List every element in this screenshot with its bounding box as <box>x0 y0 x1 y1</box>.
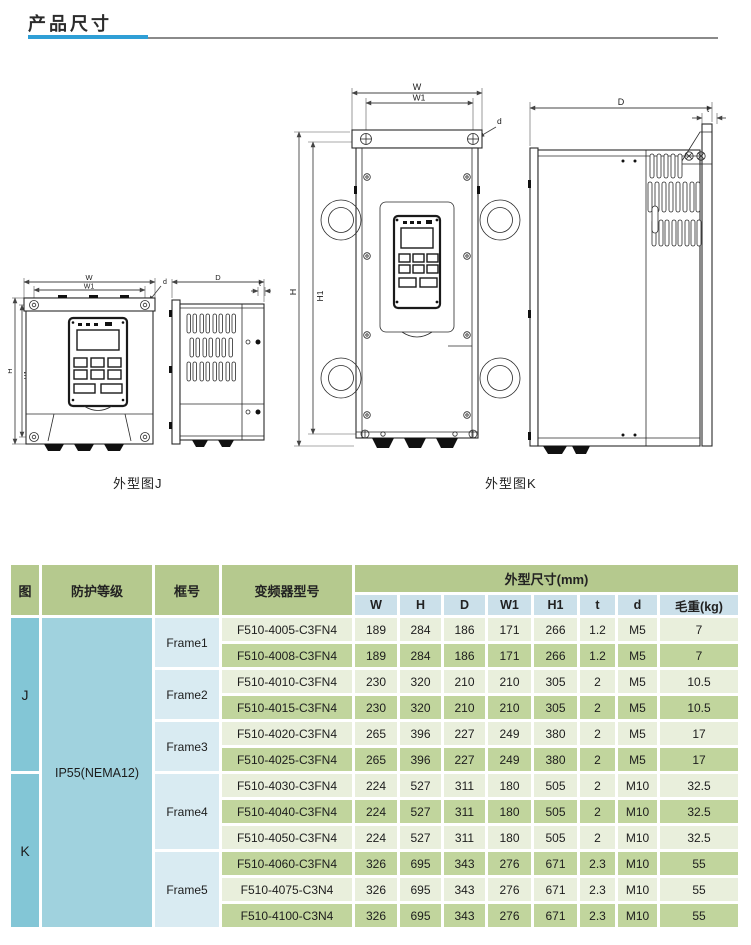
value-cell: 55 <box>660 852 738 875</box>
header-dim-w1: W1 <box>488 595 531 615</box>
value-cell: 326 <box>355 852 397 875</box>
model-cell: F510-4010-C3FN4 <box>222 670 352 693</box>
value-cell: 343 <box>444 878 485 901</box>
header-dim-h1: H1 <box>534 595 577 615</box>
value-cell: 671 <box>534 852 577 875</box>
value-cell: 265 <box>355 722 397 745</box>
value-cell: 266 <box>534 618 577 641</box>
value-cell: 2 <box>580 826 615 849</box>
value-cell: 2.3 <box>580 878 615 901</box>
model-cell: F510-4020-C3FN4 <box>222 722 352 745</box>
value-cell: 189 <box>355 618 397 641</box>
model-cell: F510-4025-C3FN4 <box>222 748 352 771</box>
figure-j-drawing: W W1 H H1 d <box>8 274 273 474</box>
value-cell: 276 <box>488 904 531 927</box>
dim-label-depth: D <box>618 97 625 107</box>
value-cell: M5 <box>618 644 657 667</box>
header-weight: 毛重(kg) <box>660 595 738 615</box>
value-cell: M5 <box>618 696 657 719</box>
value-cell: M10 <box>618 852 657 875</box>
value-cell: 17 <box>660 748 738 771</box>
value-cell: 265 <box>355 748 397 771</box>
value-cell: M10 <box>618 904 657 927</box>
dim-label-h1: H1 <box>315 290 325 301</box>
value-cell: 227 <box>444 748 485 771</box>
value-cell: 10.5 <box>660 670 738 693</box>
dim-label-h: H <box>8 368 14 373</box>
value-cell: 311 <box>444 826 485 849</box>
figure-j-front-view <box>24 295 155 451</box>
value-cell: 380 <box>534 722 577 745</box>
value-cell: 55 <box>660 878 738 901</box>
value-cell: 527 <box>400 774 441 797</box>
value-cell: M5 <box>618 748 657 771</box>
value-cell: M10 <box>618 878 657 901</box>
value-cell: 10.5 <box>660 696 738 719</box>
figure-j-keypad <box>69 318 127 406</box>
value-cell: 180 <box>488 826 531 849</box>
value-cell: 17 <box>660 722 738 745</box>
model-cell: F510-4030-C3FN4 <box>222 774 352 797</box>
value-cell: 505 <box>534 800 577 823</box>
dim-label-w: W <box>85 274 93 282</box>
model-cell: F510-4050-C3FN4 <box>222 826 352 849</box>
value-cell: 527 <box>400 826 441 849</box>
value-cell: 32.5 <box>660 774 738 797</box>
dim-label-depth: D <box>215 274 221 282</box>
dim-label-w1: W1 <box>413 93 426 103</box>
value-cell: 343 <box>444 904 485 927</box>
header-protection: 防护等级 <box>42 565 152 615</box>
value-cell: 284 <box>400 618 441 641</box>
fig-cell-j: J <box>11 618 39 771</box>
model-cell: F510-4008-C3FN4 <box>222 644 352 667</box>
figure-k-keypad <box>394 216 440 308</box>
value-cell: 249 <box>488 722 531 745</box>
value-cell: M5 <box>618 670 657 693</box>
dim-label-t: t <box>259 281 261 288</box>
header-dim-w: W <box>355 595 397 615</box>
value-cell: M10 <box>618 826 657 849</box>
figure-k-drawing: W W1 H H1 d <box>290 80 745 470</box>
figure-k-front-view <box>321 130 520 448</box>
page-title: 产品尺寸 <box>28 10 112 36</box>
protection-cell: IP55(NEMA12) <box>42 618 152 927</box>
model-cell: F510-4005-C3FN4 <box>222 618 352 641</box>
table-row: J IP55(NEMA12) Frame1 F510-4005-C3FN4 18… <box>11 618 738 641</box>
value-cell: 695 <box>400 852 441 875</box>
frame-cell: Frame2 <box>155 670 219 719</box>
dim-label-d: d <box>163 279 167 286</box>
value-cell: 2.3 <box>580 852 615 875</box>
frame-cell: Frame5 <box>155 852 219 927</box>
header-dim-h: H <box>400 595 441 615</box>
value-cell: 671 <box>534 878 577 901</box>
header-fig: 图 <box>11 565 39 615</box>
value-cell: 276 <box>488 878 531 901</box>
value-cell: 249 <box>488 748 531 771</box>
value-cell: 311 <box>444 774 485 797</box>
value-cell: 210 <box>444 670 485 693</box>
figure-j-side-view: D t <box>169 274 271 447</box>
header-model: 变频器型号 <box>222 565 352 615</box>
model-cell: F510-4100-C3N4 <box>222 904 352 927</box>
dim-label-w: W <box>413 82 422 92</box>
value-cell: 695 <box>400 878 441 901</box>
model-cell: F510-4060-C3FN4 <box>222 852 352 875</box>
value-cell: 284 <box>400 644 441 667</box>
value-cell: M5 <box>618 618 657 641</box>
product-dimensions-page: { "page": { "title": "产品尺寸" }, "colors":… <box>0 0 751 945</box>
spec-table: 图 防护等级 框号 变频器型号 外型尺寸(mm) W H D W1 H1 t d… <box>8 562 741 930</box>
value-cell: M10 <box>618 774 657 797</box>
title-underline-accent <box>28 35 148 39</box>
frame-cell: Frame1 <box>155 618 219 667</box>
value-cell: 227 <box>444 722 485 745</box>
value-cell: 189 <box>355 644 397 667</box>
header-dim-d: D <box>444 595 485 615</box>
value-cell: 7 <box>660 644 738 667</box>
value-cell: 32.5 <box>660 800 738 823</box>
value-cell: 224 <box>355 826 397 849</box>
header-frame: 框号 <box>155 565 219 615</box>
value-cell: 2 <box>580 696 615 719</box>
value-cell: 2 <box>580 800 615 823</box>
figure-k-side-view: D t <box>528 97 726 454</box>
dim-label-d: d <box>497 116 502 126</box>
value-cell: 224 <box>355 800 397 823</box>
value-cell: 210 <box>488 696 531 719</box>
dim-label-h: H <box>290 289 298 296</box>
keypad-display <box>401 228 433 248</box>
title-underline-rule <box>148 37 718 39</box>
fig-cell-k: K <box>11 774 39 927</box>
header-dim-screw: d <box>618 595 657 615</box>
header-dims-group: 外型尺寸(mm) <box>355 565 738 592</box>
value-cell: 230 <box>355 696 397 719</box>
value-cell: 266 <box>534 644 577 667</box>
value-cell: M10 <box>618 800 657 823</box>
keypad-display <box>77 330 119 350</box>
value-cell: 326 <box>355 904 397 927</box>
dim-label-w1: W1 <box>84 284 95 291</box>
cable-glands <box>372 438 458 448</box>
dim-label-t: t <box>707 105 710 114</box>
table-header-row-1: 图 防护等级 框号 变频器型号 外型尺寸(mm) <box>11 565 738 592</box>
value-cell: 180 <box>488 800 531 823</box>
value-cell: 186 <box>444 618 485 641</box>
value-cell: 7 <box>660 618 738 641</box>
value-cell: 276 <box>488 852 531 875</box>
value-cell: 396 <box>400 722 441 745</box>
value-cell: 380 <box>534 748 577 771</box>
frame-cell: Frame3 <box>155 722 219 771</box>
header-dim-t: t <box>580 595 615 615</box>
value-cell: 505 <box>534 774 577 797</box>
value-cell: 2.3 <box>580 904 615 927</box>
value-cell: 210 <box>444 696 485 719</box>
value-cell: 396 <box>400 748 441 771</box>
value-cell: 311 <box>444 800 485 823</box>
value-cell: 55 <box>660 904 738 927</box>
value-cell: 2 <box>580 722 615 745</box>
value-cell: 343 <box>444 852 485 875</box>
value-cell: 527 <box>400 800 441 823</box>
cable-glands <box>44 444 124 451</box>
model-cell: F510-4075-C3N4 <box>222 878 352 901</box>
value-cell: 305 <box>534 696 577 719</box>
value-cell: 171 <box>488 618 531 641</box>
value-cell: 320 <box>400 696 441 719</box>
value-cell: 210 <box>488 670 531 693</box>
value-cell: 224 <box>355 774 397 797</box>
value-cell: 305 <box>534 670 577 693</box>
value-cell: 1.2 <box>580 644 615 667</box>
value-cell: M5 <box>618 722 657 745</box>
figure-k-caption: 外型图K <box>485 473 537 492</box>
value-cell: 230 <box>355 670 397 693</box>
value-cell: 505 <box>534 826 577 849</box>
value-cell: 2 <box>580 748 615 771</box>
model-cell: F510-4040-C3FN4 <box>222 800 352 823</box>
figure-j-caption: 外型图J <box>113 473 163 492</box>
model-cell: F510-4015-C3FN4 <box>222 696 352 719</box>
value-cell: 320 <box>400 670 441 693</box>
value-cell: 186 <box>444 644 485 667</box>
value-cell: 2 <box>580 774 615 797</box>
value-cell: 671 <box>534 904 577 927</box>
value-cell: 180 <box>488 774 531 797</box>
value-cell: 326 <box>355 878 397 901</box>
value-cell: 32.5 <box>660 826 738 849</box>
frame-cell: Frame4 <box>155 774 219 849</box>
value-cell: 1.2 <box>580 618 615 641</box>
value-cell: 2 <box>580 670 615 693</box>
value-cell: 695 <box>400 904 441 927</box>
value-cell: 171 <box>488 644 531 667</box>
